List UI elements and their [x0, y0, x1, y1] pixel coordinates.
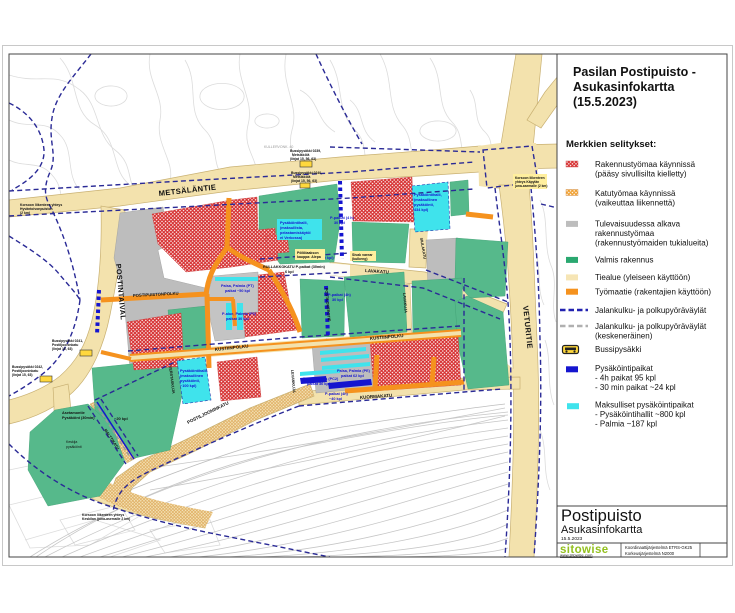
svg-text:pysäköinti,: pysäköinti, — [414, 203, 434, 207]
svg-text:Keskija: Keskija — [66, 440, 77, 444]
svg-text:Pasilan Postipuisto -: Pasilan Postipuisto - — [573, 65, 696, 79]
svg-text:Palsa, Palmia (PT): Palsa, Palmia (PT) — [221, 284, 254, 288]
svg-text:6 kpl: 6 kpl — [285, 270, 294, 274]
svg-text:(maksullinen: (maksullinen — [180, 374, 204, 378]
svg-text:pelastamiskäytöl: pelastamiskäytöl — [280, 231, 311, 235]
svg-text:(linjat 15, 56, 63): (linjat 15, 56, 63) — [291, 179, 317, 183]
svg-text:(keskeneräinen): (keskeneräinen) — [595, 331, 653, 340]
svg-text:Asukasinfokartta: Asukasinfokartta — [561, 524, 643, 536]
svg-text:434 kpl): 434 kpl) — [414, 208, 429, 212]
svg-text:(15.5.2023): (15.5.2023) — [573, 95, 637, 109]
svg-text:Tiealue (yleiseen käyttöön): Tiealue (yleiseen käyttöön) — [595, 273, 691, 282]
svg-text:Pysäköintihalli,: Pysäköintihalli, — [414, 193, 442, 197]
svg-text:Maksulliset pysäköintipaikat: Maksulliset pysäköintipaikat — [595, 401, 694, 410]
svg-text:Työmaatie (rakentajien käyttöö: Työmaatie (rakentajien käyttöön) — [595, 288, 711, 297]
svg-text:Katutyömaa käynnissä: Katutyömaa käynnissä — [595, 189, 676, 198]
svg-text:www.sitowise.com: www.sitowise.com — [560, 553, 593, 558]
svg-text:Merkkien selitykset:: Merkkien selitykset: — [566, 139, 656, 150]
svg-text:paikat 62 kpl: paikat 62 kpl — [341, 374, 364, 378]
svg-text:~100 kpl): ~100 kpl) — [180, 384, 197, 388]
svg-text:(vaikeuttaa liikennettä): (vaikeuttaa liikennettä) — [595, 198, 675, 207]
svg-text:Palsa, Palmia (PC2): Palsa, Palmia (PC2) — [303, 377, 339, 381]
svg-text:juna-asemalle (2 km): juna-asemalle (2 km) — [514, 184, 547, 188]
svg-text:Pysäköint (30min): Pysäköint (30min) — [62, 416, 95, 420]
svg-text:Koordinaattijärjestelmä ETRS-: Koordinaattijärjestelmä ETRS-GK25 — [625, 545, 693, 550]
svg-text:pysäköinti,: pysäköinti, — [180, 379, 200, 383]
svg-text:(linjat 15, 63): (linjat 15, 63) — [12, 373, 33, 377]
svg-text:(linjat 15, 56, 63): (linjat 15, 56, 63) — [290, 157, 316, 161]
svg-text:P-paikat (4h): P-paikat (4h) — [328, 293, 352, 297]
svg-text:Rakennustyömaa käynnissä: Rakennustyömaa käynnissä — [595, 160, 696, 169]
svg-text:Pysäköintihalli,: Pysäköintihalli, — [180, 369, 208, 373]
svg-text:P-alue, Palmia (P6): P-alue, Palmia (P6) — [222, 312, 257, 316]
svg-text:Valmis rakennus: Valmis rakennus — [595, 256, 654, 265]
svg-text:- Pysäköintihallit ~800 kpl: - Pysäköintihallit ~800 kpl — [595, 410, 686, 419]
svg-text:Korkeusjärjestelmä N200: Korkeusjärjestelmä N2000 — [625, 551, 675, 556]
svg-text:Pysäköintihalli,: Pysäköintihalli, — [280, 221, 308, 225]
svg-text:Tulevaisuudessa alkava: Tulevaisuudessa alkava — [595, 220, 681, 229]
svg-text:~20 kpl: ~20 kpl — [114, 416, 128, 421]
svg-text:Keskilan (juna-asemalle 2 km): Keskilan (juna-asemalle 2 km) — [82, 517, 130, 521]
svg-text:(rakennustyömaiden tukialueita: (rakennustyömaiden tukialueita) — [595, 238, 709, 247]
svg-text:rakennustyömaa: rakennustyömaa — [595, 229, 655, 238]
svg-text:Asukasinfokartta: Asukasinfokartta — [573, 80, 675, 94]
svg-text:(maksullista,: (maksullista, — [280, 226, 303, 230]
svg-text:pysäköinti: pysäköinti — [66, 445, 82, 449]
svg-text:- Palmia ~187 kpl: - Palmia ~187 kpl — [595, 419, 657, 428]
svg-text:KULLERVONK. 40: KULLERVONK. 40 — [264, 145, 293, 149]
svg-text:Asetamontie: Asetamontie — [62, 411, 85, 415]
svg-text:kauppa: Alepa: kauppa: Alepa — [297, 255, 321, 259]
svg-text:(kulkeng): (kulkeng) — [352, 257, 368, 261]
svg-text:~40 kpl: ~40 kpl — [329, 397, 342, 401]
svg-text:Palsa, Palmia (PE): Palsa, Palmia (PE) — [337, 369, 371, 373]
svg-text:- 4h paikat 95 kpl: - 4h paikat 95 kpl — [595, 374, 656, 383]
svg-text:P-paikat (4 h): P-paikat (4 h) — [330, 216, 355, 220]
svg-text:ei Verkossa): ei Verkossa) — [280, 236, 303, 240]
svg-text:30 kpl: 30 kpl — [334, 221, 345, 225]
svg-text:(pääsy sivullisilta kielletty): (pääsy sivullisilta kielletty) — [595, 169, 687, 178]
svg-text:(maksullinen: (maksullinen — [414, 198, 438, 202]
svg-text:paikat 36 kpl: paikat 36 kpl — [307, 382, 330, 386]
svg-text:30 kpl: 30 kpl — [332, 298, 343, 302]
svg-text:RULLAKKOKATU P-paikat (30min): RULLAKKOKATU P-paikat (30min) — [263, 265, 326, 269]
svg-text:(linjat 15, 63): (linjat 15, 63) — [52, 347, 73, 351]
svg-text:Pysäköintipaikat: Pysäköintipaikat — [595, 364, 654, 373]
svg-text:paikat 30 kpl: paikat 30 kpl — [226, 317, 249, 321]
svg-text:Postipuisto: Postipuisto — [561, 507, 642, 525]
svg-text:Jalankulku- ja polkupyöräväylä: Jalankulku- ja polkupyöräväylät — [595, 306, 707, 315]
svg-text:15.5.2023: 15.5.2023 — [561, 536, 583, 542]
svg-text:(2 km): (2 km) — [20, 211, 30, 215]
svg-text:P-paikat (4h): P-paikat (4h) — [325, 392, 349, 396]
svg-text:- 30 min paikat ~24 kpl: - 30 min paikat ~24 kpl — [595, 383, 676, 392]
svg-text:paikat ~50 kpl: paikat ~50 kpl — [225, 289, 250, 293]
svg-text:Bussipysäkki: Bussipysäkki — [595, 345, 641, 354]
svg-text:Jalankulku- ja polkupyöräväylä: Jalankulku- ja polkupyöräväylät — [595, 322, 707, 331]
